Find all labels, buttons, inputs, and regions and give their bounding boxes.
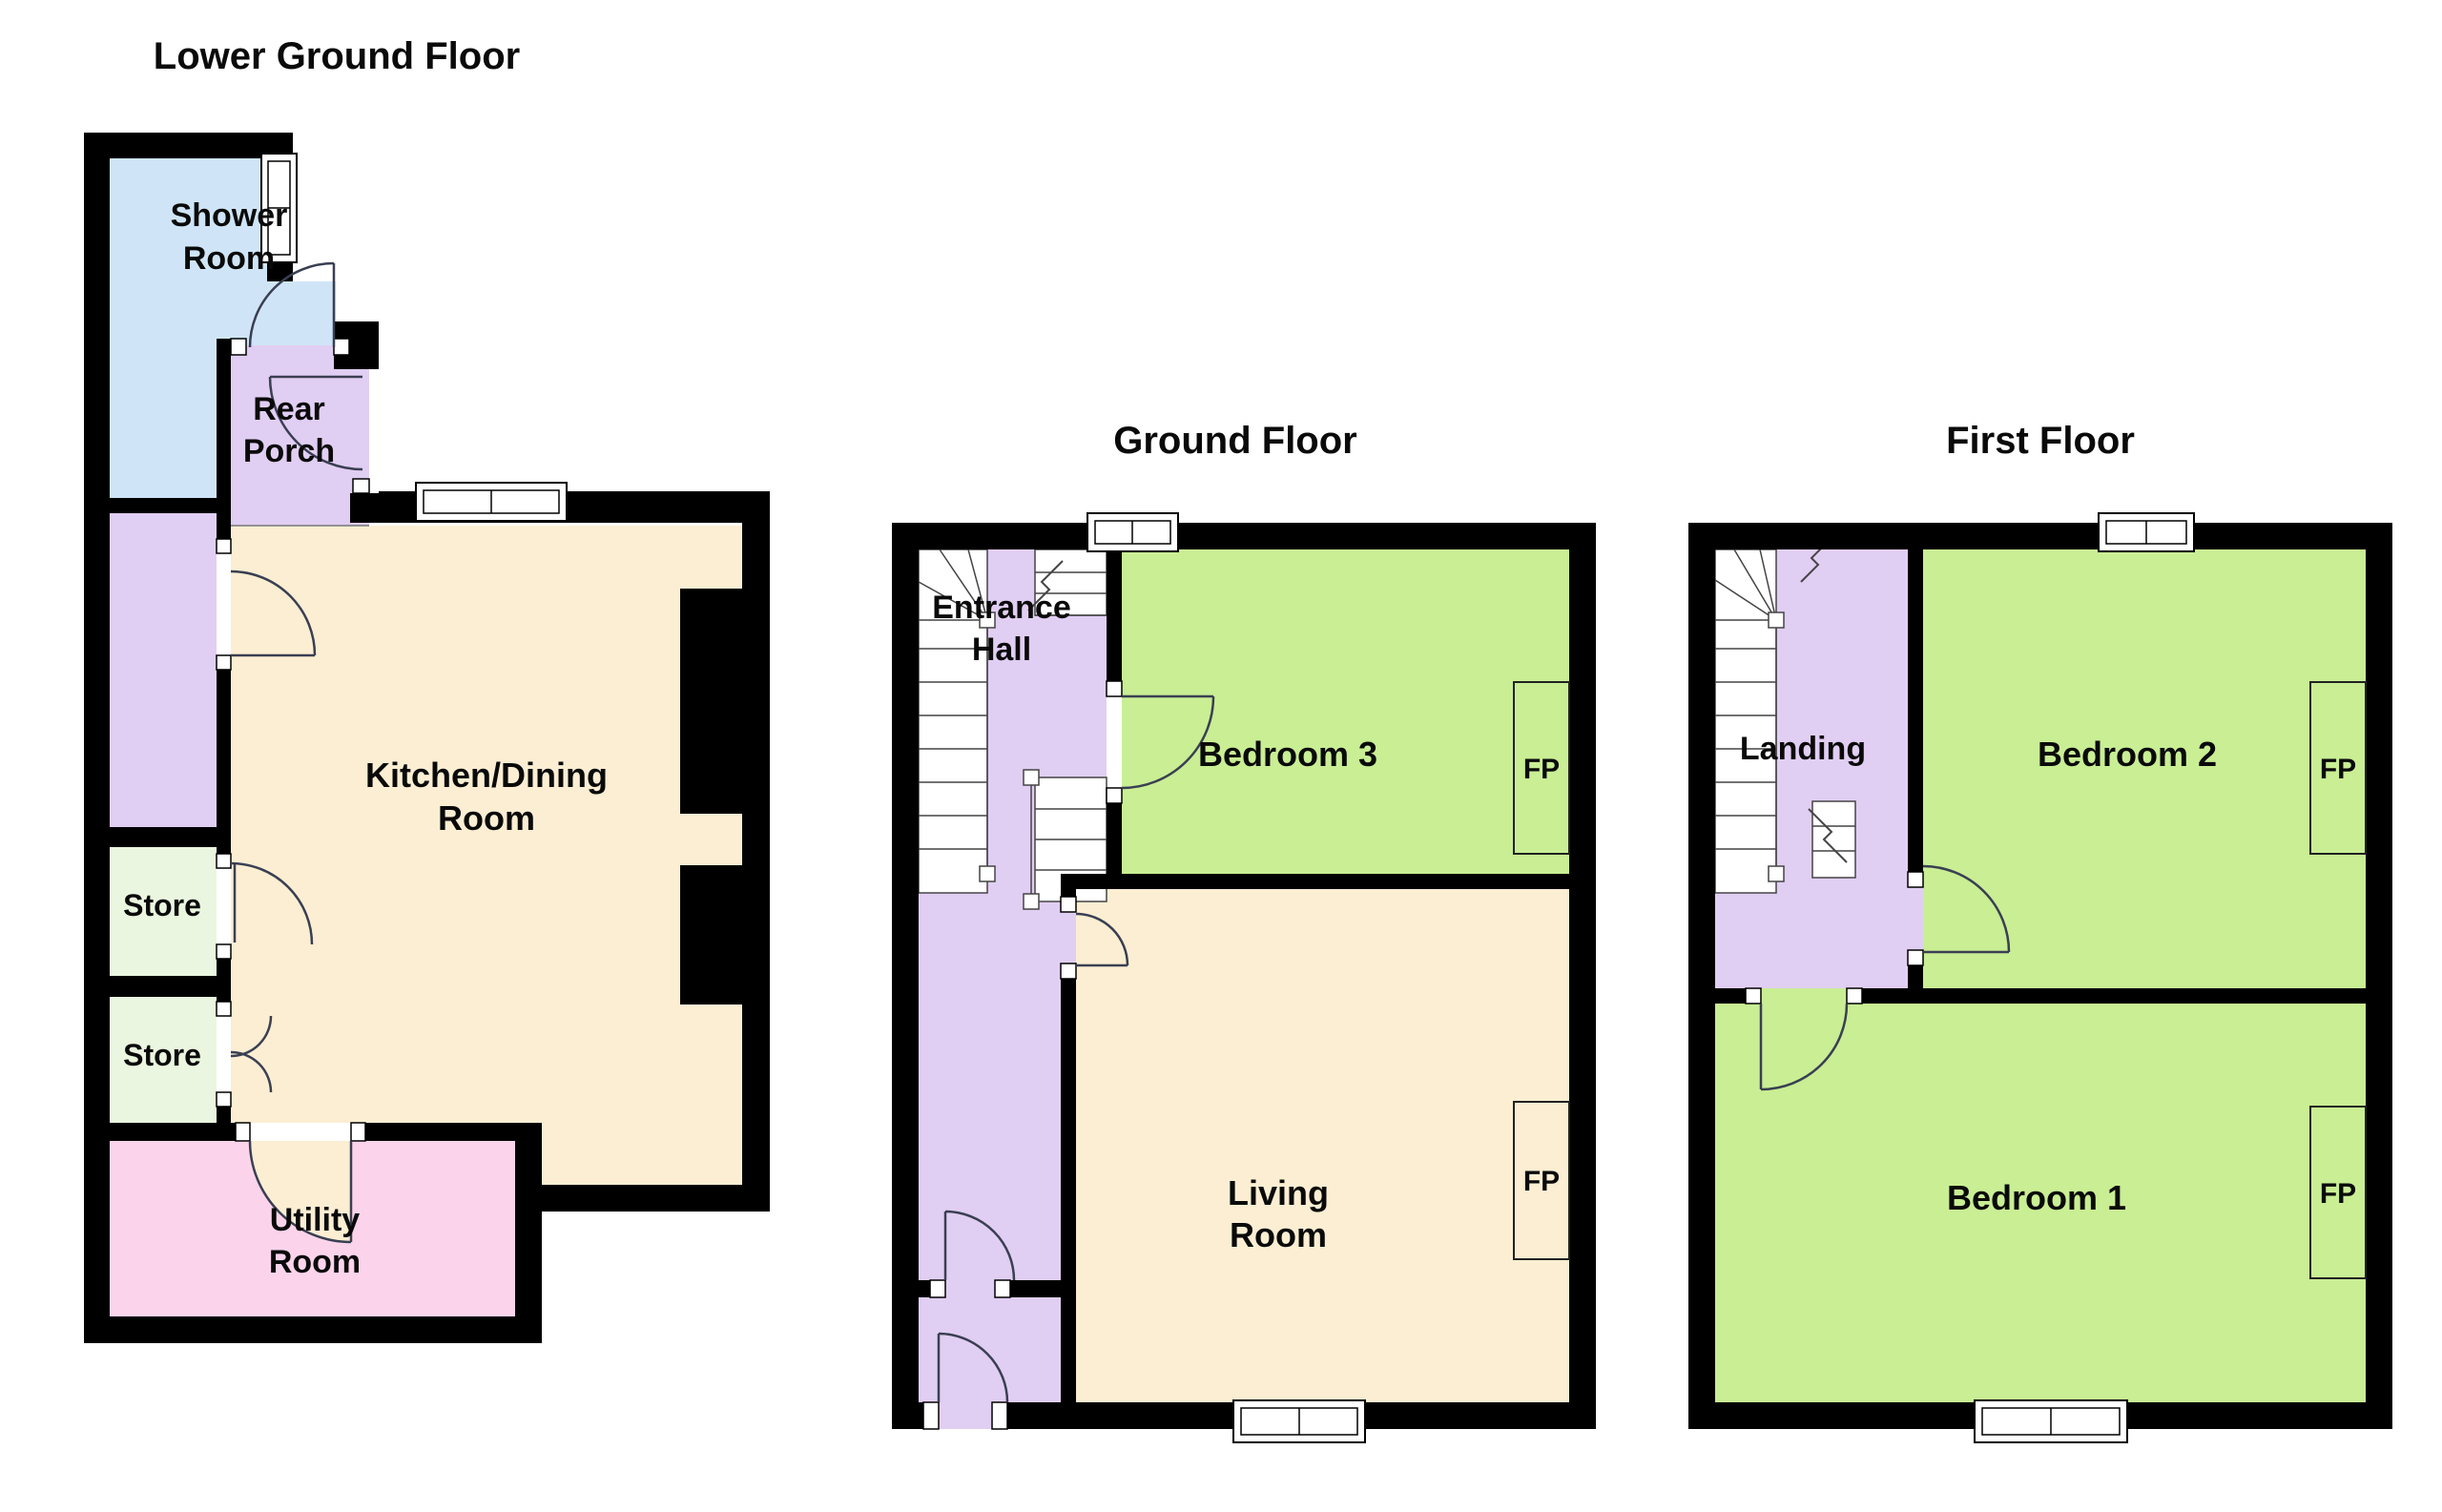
- floorplan-canvas: Lower Ground Floor: [0, 0, 2442, 1507]
- room-kitchen-dining: [231, 526, 742, 1185]
- front-door-opening: [939, 1402, 992, 1429]
- store-lower-label: Store: [123, 1038, 201, 1072]
- first-title: First Floor: [1946, 420, 2135, 462]
- bedroom2-fp-label: FP: [2320, 754, 2356, 785]
- bedroom2-label: Bedroom 2: [2038, 735, 2217, 774]
- landing-label: Landing: [1740, 731, 1866, 767]
- bedroom1-fp-label: FP: [2320, 1178, 2356, 1210]
- first-floor-plan: First Floor: [1688, 420, 2392, 1442]
- lower-ground-floor-plan: Lower Ground Floor: [84, 35, 770, 1343]
- utility-label-line2: Room: [269, 1244, 361, 1280]
- bedroom2-window: [2099, 513, 2194, 551]
- rear-porch-label-line2: Porch: [243, 433, 335, 469]
- bedroom3-window: [1087, 513, 1178, 551]
- room-bedroom3: [1122, 549, 1569, 874]
- store-upper-label: Store: [123, 888, 201, 922]
- bedroom1-door-opening: [1761, 988, 1847, 1004]
- room-lower-hallway: [110, 513, 217, 827]
- hall-stub-opening: [945, 1280, 995, 1297]
- utility-label-line1: Utility: [270, 1202, 361, 1238]
- entrance-hall-label-line1: Entrance: [932, 590, 1071, 626]
- bedroom2-door-opening: [1908, 887, 1923, 950]
- kitchen-label-line2: Room: [438, 798, 535, 838]
- bedroom3-label: Bedroom 3: [1198, 735, 1377, 774]
- living-fp-label: FP: [1523, 1166, 1560, 1197]
- bedroom3-fp-label: FP: [1523, 754, 1560, 785]
- living-label-line1: Living: [1228, 1173, 1329, 1212]
- living-label-line2: Room: [1230, 1215, 1327, 1254]
- lower-ground-title: Lower Ground Floor: [154, 35, 520, 77]
- entrance-hall-label-line2: Hall: [972, 632, 1031, 668]
- bedroom1-label: Bedroom 1: [1947, 1178, 2126, 1217]
- ground-title: Ground Floor: [1113, 420, 1357, 462]
- living-room-window: [1233, 1400, 1365, 1442]
- ground-floor-plan: Ground Floor: [892, 420, 1596, 1442]
- bedroom1-window: [1975, 1400, 2127, 1442]
- kitchen-label-line1: Kitchen/Dining: [365, 756, 608, 795]
- shower-label-line2: Room: [183, 240, 275, 277]
- rear-porch-label-line1: Rear: [253, 391, 325, 427]
- shower-label-line1: Shower: [171, 197, 288, 234]
- kitchen-window: [416, 483, 567, 521]
- room-living: [1076, 889, 1569, 1402]
